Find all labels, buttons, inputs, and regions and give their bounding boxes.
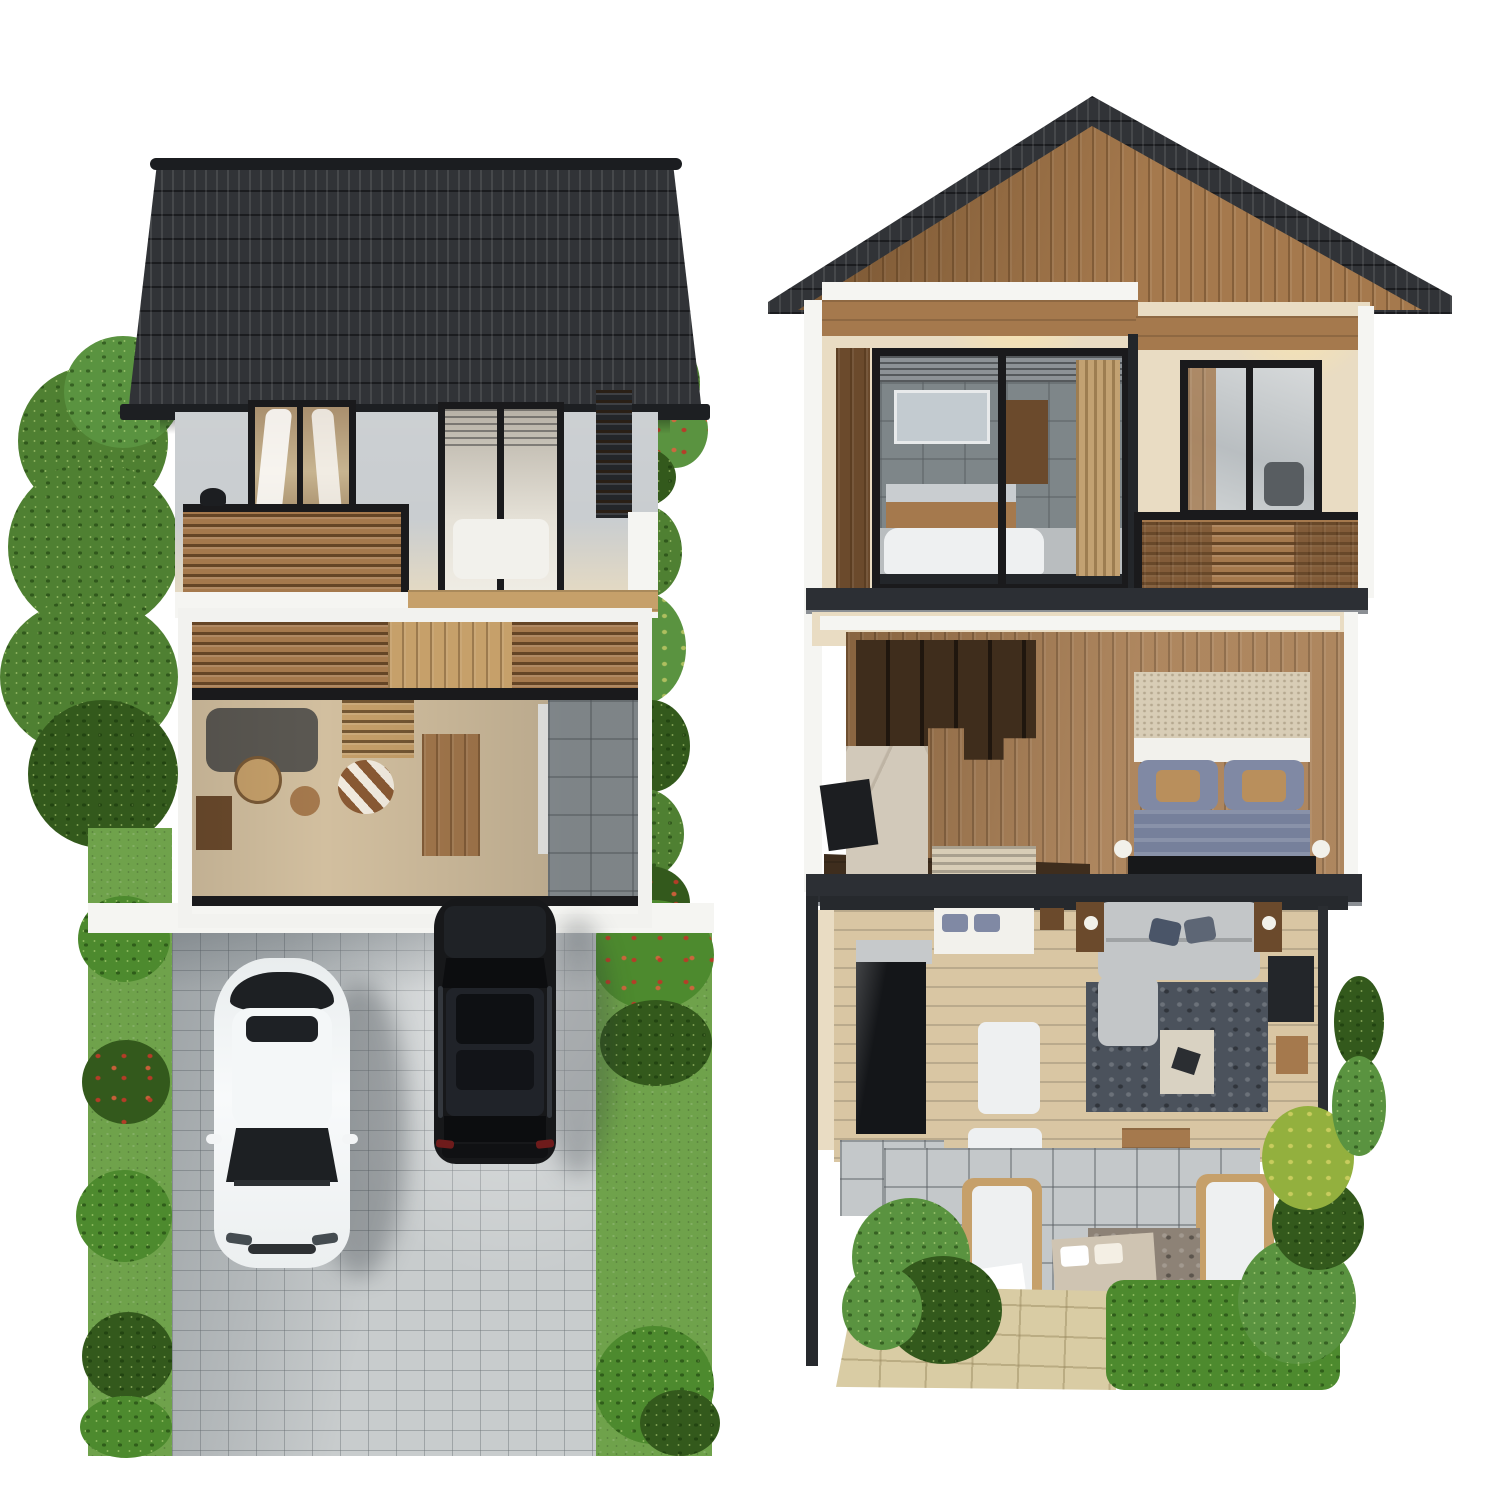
wood-stool-plan: [1276, 1036, 1308, 1074]
railing-post: [401, 504, 409, 600]
left-shrub: [82, 1312, 174, 1400]
table-book: [1171, 1047, 1201, 1075]
glass-mullion: [998, 356, 1006, 584]
shower-curtain: [1076, 360, 1120, 576]
bedroom-white-beam: [820, 616, 1340, 630]
daybed-pillow: [1060, 1245, 1089, 1267]
potted-plant-left-small: [842, 1266, 922, 1350]
sofa-throw-pillow: [1183, 916, 1217, 945]
sofa-seat-line: [1106, 938, 1252, 942]
upper-sliding-door: [438, 402, 564, 598]
tan-cushion-right: [1242, 770, 1286, 802]
plan-inner-wall-strip: [818, 910, 834, 1150]
left-house-roof: [128, 166, 702, 412]
railing-top-rail: [1134, 512, 1370, 520]
coffee-table-top-view: [1160, 1030, 1214, 1094]
sunroof-rear: [456, 1050, 534, 1090]
bedroom-right-column: [1344, 612, 1358, 874]
glass-sill-frame: [192, 896, 638, 906]
bedside-lamp-right: [1312, 840, 1330, 858]
right-house-section-view: [750, 0, 1500, 1500]
vanity-counter: [886, 484, 1016, 502]
wood-lintel-left: [822, 300, 1138, 336]
balcony-wood-railing: [183, 504, 409, 600]
louver-panel-right: [512, 622, 638, 688]
white-sedan-top-view: [214, 958, 350, 1268]
media-console: [1268, 956, 1314, 1022]
table-lamp: [1084, 916, 1098, 930]
bed-blanket: [1134, 810, 1310, 856]
left-shrub: [76, 1170, 172, 1262]
right-shrub: [600, 1000, 712, 1086]
plan-bed-pillow: [942, 914, 968, 932]
wall-tv-screen: [820, 779, 879, 851]
interior-bed-glimpse: [453, 519, 549, 579]
roof-rail-right: [547, 986, 552, 1118]
side-mirror-right: [342, 1134, 358, 1144]
striped-bench-runner: [932, 846, 1036, 876]
bed-sheet-band: [1134, 738, 1310, 762]
plan-bed-pillow: [974, 914, 1000, 932]
balcony-room-window: [1180, 360, 1322, 518]
living-room-interior: [192, 700, 638, 896]
side-mirror-left: [206, 1134, 222, 1144]
table-lamp: [1262, 916, 1276, 930]
tan-cushion-left: [1156, 770, 1200, 802]
plan-left-wall: [806, 896, 818, 1366]
bathtub: [884, 528, 1044, 574]
railing-post: [1134, 512, 1142, 596]
desk-chair-silhouette: [1264, 462, 1304, 506]
left-house-ridge-cap: [150, 158, 682, 170]
sunroof-front: [456, 994, 534, 1044]
sofa-chaise: [1098, 976, 1158, 1046]
bedroom-bed: [1128, 664, 1316, 884]
white-beam: [822, 282, 1138, 302]
wood-lintel-right: [1136, 316, 1368, 350]
side-garden-plant: [1334, 976, 1384, 1068]
windshield: [226, 1128, 338, 1182]
wood-slat-wall-panel: [836, 348, 870, 592]
daybed-pillow: [1094, 1243, 1123, 1265]
cutaway-living-box: [178, 608, 652, 928]
bathroom-mirror: [894, 390, 990, 444]
railing-patch-panel: [1142, 522, 1212, 592]
bedside-lamp-left: [1114, 840, 1132, 858]
dark-louver-shutter: [596, 390, 632, 518]
bathroom-glass-unit: [872, 348, 1130, 592]
window-mullion: [1246, 368, 1253, 510]
right-corner-post: [1358, 306, 1374, 598]
white-furniture-block: [978, 1022, 1040, 1114]
sectional-sofa-top-view: [1098, 902, 1260, 980]
right-shrub: [640, 1390, 720, 1456]
rear-window: [444, 1116, 546, 1142]
side-garden-plant: [1332, 1056, 1386, 1156]
architectural-render-canvas: [0, 0, 1500, 1500]
railing-patch-panel: [1294, 522, 1364, 592]
bed-headboard: [1134, 672, 1310, 738]
glass-header-frame: [192, 688, 638, 700]
balcony-kettle-silhouette: [200, 488, 226, 506]
louver-panel-left: [192, 622, 388, 688]
sunroof: [246, 1016, 318, 1042]
window-wood-reflection: [1188, 368, 1216, 510]
windshield: [442, 958, 548, 988]
vanity-wood-base: [886, 502, 1016, 528]
kitchen-counter-top: [856, 940, 932, 964]
black-suv-top-view: [434, 898, 556, 1164]
hood-panel: [444, 906, 546, 958]
roof-rail-left: [438, 986, 443, 1118]
section-balcony-railing: [1134, 512, 1370, 596]
left-tree-canopy-bottom: [28, 700, 178, 848]
room-light-shading: [192, 700, 638, 896]
cowl-strip: [234, 1180, 330, 1186]
left-house-view: [0, 0, 750, 1500]
plan-nightstand: [1040, 908, 1064, 930]
left-shrub: [80, 1396, 172, 1458]
plan-bed-upper-left: [934, 908, 1034, 954]
front-grille: [248, 1244, 316, 1254]
upper-wood-wall: [388, 622, 512, 688]
left-flowering-shrub: [82, 1040, 170, 1124]
rear-bumper: [442, 1144, 548, 1158]
upper-floor-slab: [806, 588, 1368, 614]
kitchen-black-cabinets: [856, 962, 926, 1134]
